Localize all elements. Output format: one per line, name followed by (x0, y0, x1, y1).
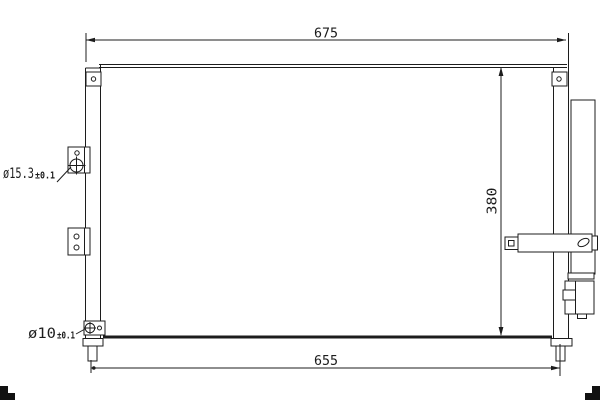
dimension-width-top-value: 675 (314, 27, 338, 42)
photo-corner-mark-bottom-left (0, 386, 15, 400)
arrowhead-right (557, 38, 566, 43)
mounting-bracket-bottom-left (84, 321, 105, 335)
left-tank (86, 65, 101, 339)
leader-line (57, 167, 71, 182)
drier-side-clip (563, 290, 576, 300)
arrowhead-down (499, 327, 504, 336)
hole-label-lower-diameter: ø10 (28, 326, 56, 342)
photo-corner-mark-bottom-right (585, 386, 600, 400)
receiver-drier (563, 100, 595, 319)
hole-label-upper-diameter: ø15.3 (3, 166, 34, 182)
foot-bottom-left (83, 339, 103, 362)
hole-label-upper: ø15.3 ±0.1 (3, 166, 71, 182)
arrowhead-right (551, 366, 560, 371)
mounting-bracket-mid-left (68, 147, 91, 175)
dimension-width-top: 675 (86, 27, 569, 71)
dimension-height-right: 380 (486, 67, 504, 336)
technical-drawing-page: 675 380 655 ø15.3 ±0.1 ø10 ±0.1 (0, 0, 600, 400)
foot-bottom-right (551, 339, 572, 362)
hole-label-lower: ø10 ±0.1 (28, 326, 85, 342)
pipe-bracket (505, 234, 598, 252)
mounting-bracket-lower-left (68, 228, 90, 255)
condenser-technical-drawing: 675 380 655 ø15.3 ±0.1 ø10 ±0.1 (0, 0, 600, 400)
pipe-bracket-left-tab (505, 237, 518, 250)
pipe-bracket-end-cap (592, 236, 598, 250)
dimension-width-bottom: 655 (91, 344, 560, 376)
arrowhead-left (86, 38, 95, 43)
dimension-width-bottom-value: 655 (314, 354, 338, 369)
hole-label-lower-tolerance: ±0.1 (57, 331, 75, 342)
mounting-bracket-top-right (552, 72, 567, 86)
hole-label-upper-tolerance: ±0.1 (35, 171, 55, 182)
dimension-origin-dot (92, 366, 96, 370)
arrowhead-up (499, 67, 504, 76)
drier-bottom-cap (568, 273, 594, 279)
drier-bottom-tab (578, 314, 587, 319)
dimension-height-right-value: 380 (486, 188, 501, 215)
mounting-bracket-top-left (86, 72, 101, 86)
